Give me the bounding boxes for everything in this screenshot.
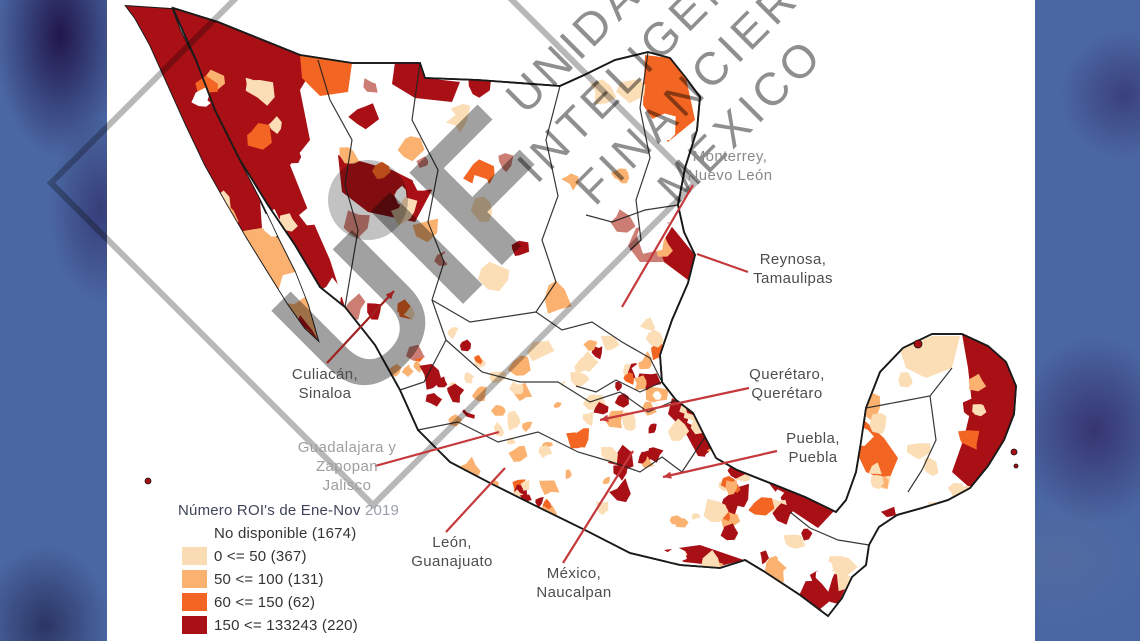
legend-row-50-100: 50 <= 100 (131) <box>182 570 399 588</box>
legend-title-year: 2019 <box>365 502 399 519</box>
legend-row-60-150: 60 <= 150 (62) <box>182 593 399 611</box>
legend-row-no-disponible: No disponible (1674) <box>182 524 399 542</box>
legend-label: 150 <= 133243 (220) <box>214 617 358 634</box>
legend-label: No disponible (1674) <box>214 525 356 542</box>
annotation-leon: León, Guanajuato <box>411 534 493 572</box>
legend-swatch <box>182 547 207 565</box>
screenshot-root: UIF UNIDAD DE INTELIGENCIA FINANCIERA MÉ… <box>0 0 1140 641</box>
legend-swatch <box>182 570 207 588</box>
annotation-leader-lines <box>0 0 1140 641</box>
annotation-mexico: México, Naucalpan <box>536 565 611 603</box>
annotation-queretaro: Querétaro, Querétaro <box>749 366 825 404</box>
annotation-guadalajara: Guadalajara y Zapopan Jalisco <box>298 439 397 495</box>
leader-line-monterrey <box>622 185 693 307</box>
leader-line-leon <box>446 468 505 532</box>
leader-line-mexico <box>563 451 633 563</box>
legend-title-text: Número ROI's de Ene-Nov <box>178 502 361 519</box>
legend-label: 50 <= 100 (131) <box>214 571 324 588</box>
legend-label: 0 <= 50 (367) <box>214 548 307 565</box>
leader-line-puebla <box>663 451 777 477</box>
leader-line-queretaro <box>600 388 749 420</box>
map-legend: Número ROI's de Ene-Nov 2019 No disponib… <box>178 502 399 634</box>
legend-swatch <box>182 593 207 611</box>
legend-label: 60 <= 150 (62) <box>214 594 315 611</box>
leader-line-reynosa <box>697 254 748 272</box>
leader-line-culiacan <box>327 291 394 363</box>
annotation-culiacan: Culiacán, Sinaloa <box>292 366 358 404</box>
legend-row-150-max: 150 <= 133243 (220) <box>182 616 399 634</box>
annotation-reynosa: Reynosa, Tamaulipas <box>753 251 833 289</box>
legend-row-0-50: 0 <= 50 (367) <box>182 547 399 565</box>
annotation-puebla: Puebla, Puebla <box>786 430 840 468</box>
annotation-monterrey: Monterrey, Nuevo León <box>688 148 773 186</box>
legend-swatch <box>182 616 207 634</box>
legend-title: Número ROI's de Ene-Nov 2019 <box>178 502 399 519</box>
